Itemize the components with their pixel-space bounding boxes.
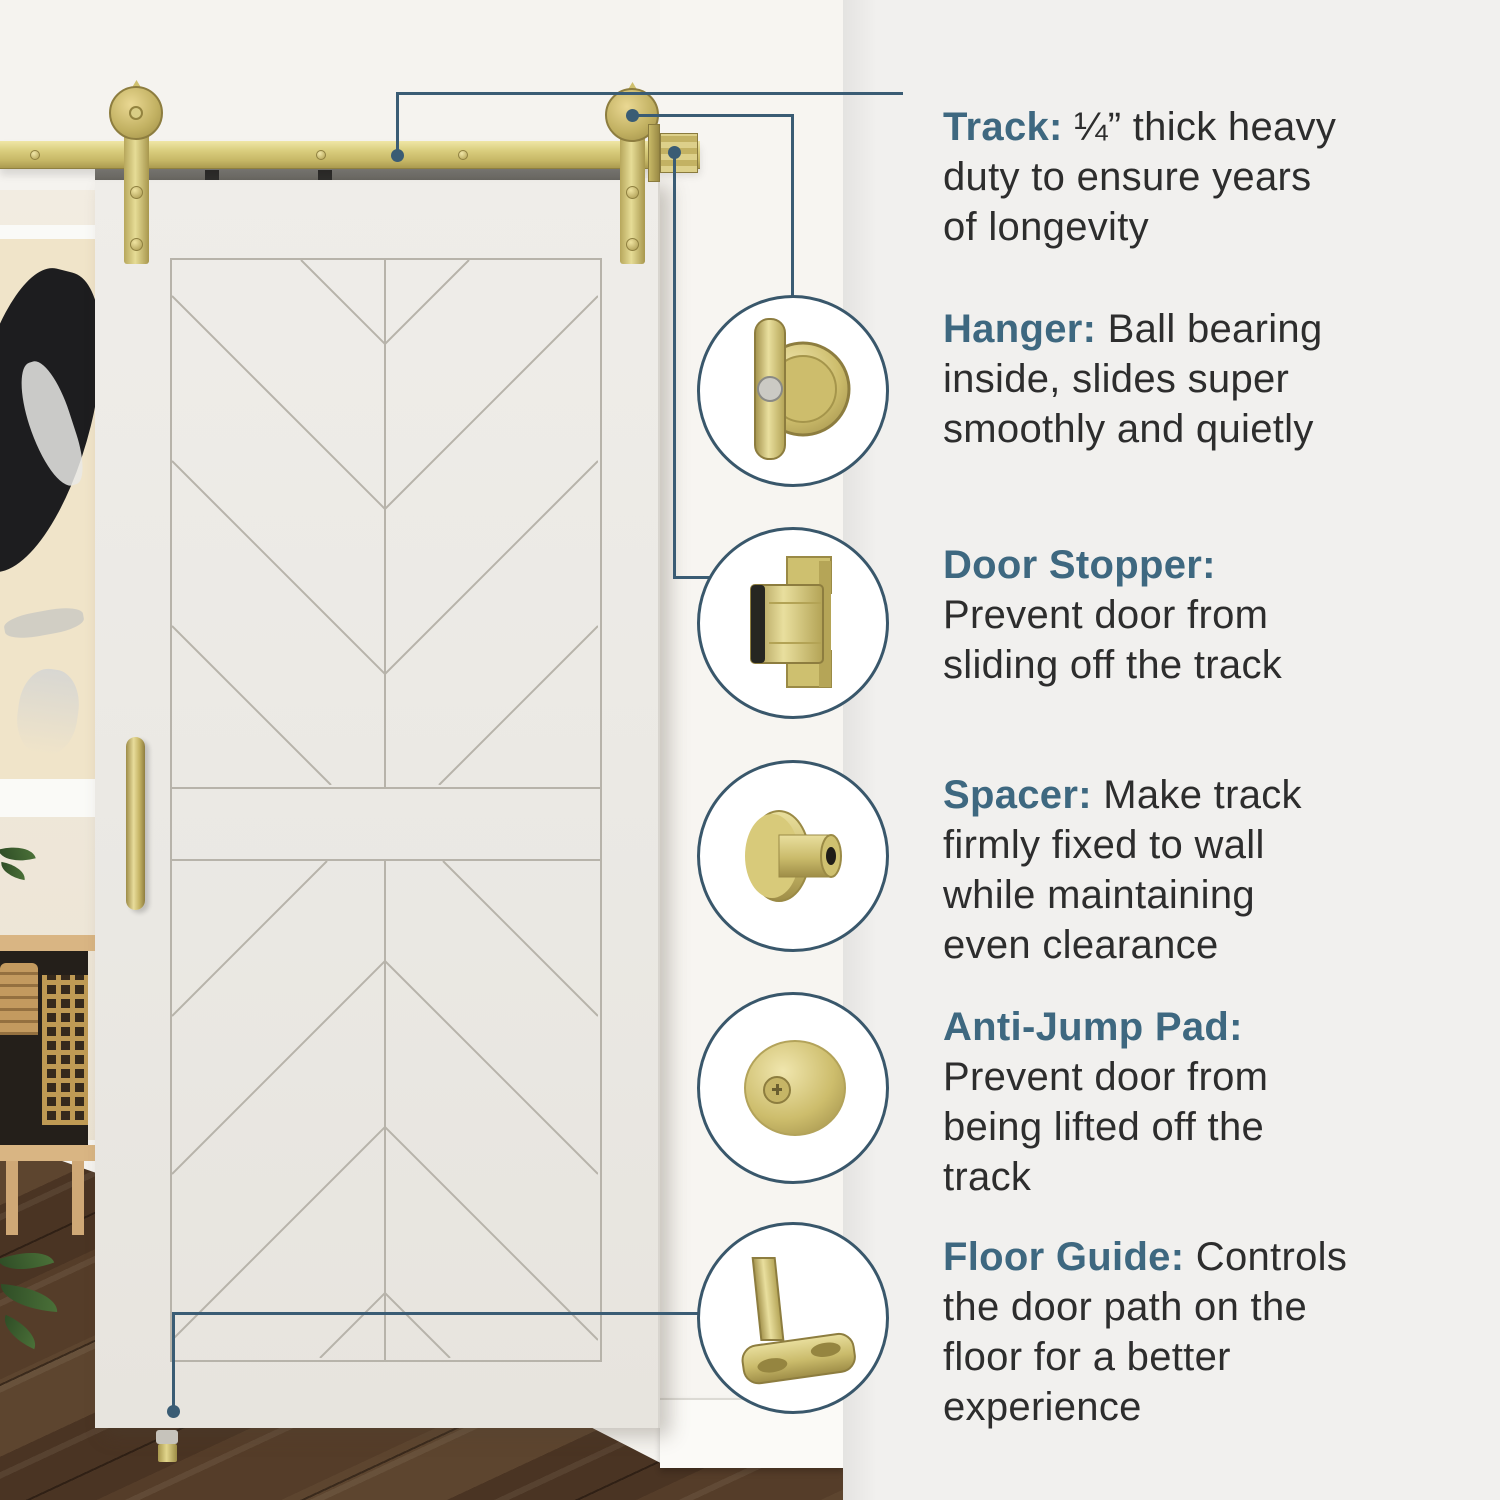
strap-bolt: [130, 238, 143, 251]
track-description: Track: ¼” thick heavyduty to ensure year…: [943, 102, 1448, 252]
console-shelf: [0, 935, 95, 1235]
floor-guide-hardware: [158, 1444, 177, 1462]
door-stopper-hardware: [648, 124, 660, 182]
hanger-bubble: [697, 295, 889, 487]
track-label: Track:: [943, 105, 1063, 149]
leader-dot-hanger: [626, 109, 639, 122]
anti-jump-pad-bubble: [697, 992, 889, 1184]
door-rail-line: [170, 787, 602, 789]
hanger-roller-icon: [700, 298, 886, 484]
floor-guide-bubble: [697, 1222, 889, 1414]
spacer-bubble: [697, 760, 889, 952]
leader-line-door-stopper: [673, 151, 676, 579]
leader-dot-floor-guide: [167, 1405, 180, 1418]
door-stopper-icon: [700, 530, 886, 716]
door-stopper-label: Door Stopper:: [943, 543, 1216, 587]
floor-guide-hardware: [156, 1430, 178, 1444]
spacer-icon: [700, 763, 886, 949]
leader-line-hanger: [632, 114, 794, 117]
hanger-description: Hanger: Ball bearinginside, slides super…: [943, 304, 1448, 454]
track-screw: [30, 150, 40, 160]
leader-dot-track: [391, 149, 404, 162]
hanger-label: Hanger:: [943, 307, 1096, 351]
door-stopper-bubble: [697, 527, 889, 719]
barn-door: [95, 178, 660, 1428]
floor-guide-description: Floor Guide: Controlsthe door path on th…: [943, 1232, 1448, 1432]
chevron-pattern-bottom: [172, 861, 598, 1358]
spacer-label: Spacer:: [943, 773, 1092, 817]
leader-line-floor-guide: [172, 1312, 175, 1412]
leader-dot-door-stopper: [668, 146, 681, 159]
hanger-axle-bolt: [129, 106, 143, 120]
strap-bolt: [626, 238, 639, 251]
anti-jump-pad-description: Anti-Jump Pad:Prevent door frombeing lif…: [943, 1002, 1448, 1202]
anti-jump-pad-label: Anti-Jump Pad:: [943, 1005, 1243, 1049]
chevron-pattern-top: [172, 260, 598, 785]
strap-bolt: [626, 186, 639, 199]
leader-line-hanger: [791, 114, 794, 297]
woven-basket: [0, 963, 38, 1035]
track-rail: [0, 141, 700, 169]
track-screw: [458, 150, 468, 160]
spacer-description: Spacer: Make trackfirmly fixed to wallwh…: [943, 770, 1448, 970]
artwork-mat: [0, 239, 96, 779]
door-stile-line: [600, 258, 602, 1362]
track-screw: [316, 150, 326, 160]
cane-basket-box: [42, 975, 88, 1125]
strap-bolt: [130, 186, 143, 199]
leader-line-track: [396, 92, 903, 95]
leader-line-floor-guide: [172, 1312, 702, 1315]
leader-line-track: [396, 93, 399, 156]
floor-guide-label: Floor Guide:: [943, 1235, 1184, 1279]
door-stopper-description: Door Stopper:Prevent door fromsliding of…: [943, 540, 1448, 690]
barn-door-hardware-infographic: Track: ¼” thick heavyduty to ensure year…: [0, 0, 1500, 1500]
wall-artwork: [0, 225, 96, 817]
floor-guide-icon: [700, 1225, 886, 1411]
door-handle: [126, 737, 145, 910]
anti-jump-pad-icon: [700, 995, 886, 1181]
door-rail-line: [170, 1360, 602, 1362]
